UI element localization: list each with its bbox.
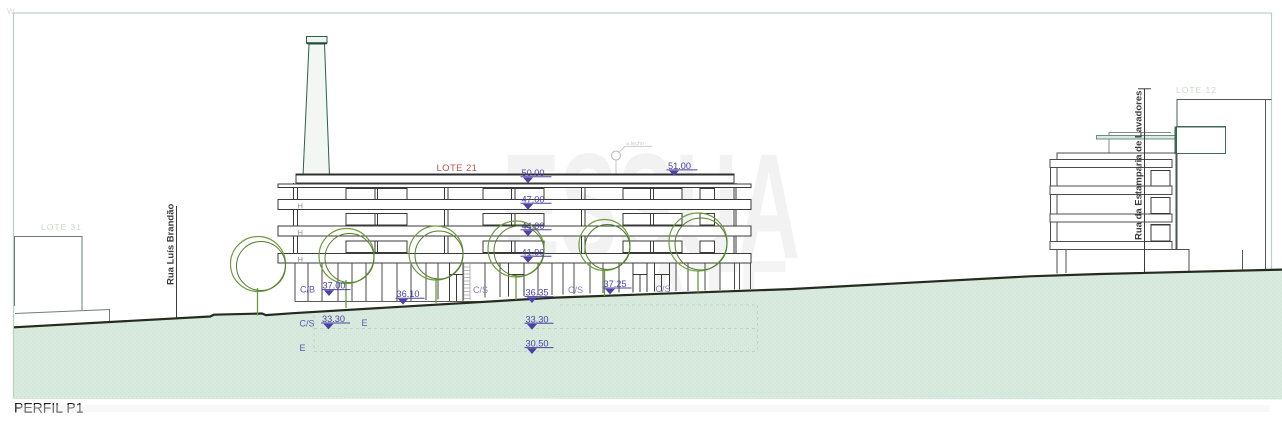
svg-text:H: H: [298, 201, 303, 210]
svg-text:H: H: [298, 255, 303, 264]
svg-text:LOTE 21: LOTE 21: [437, 163, 478, 174]
svg-text:Rua da Estamparia de Lavadores: Rua da Estamparia de Lavadores: [1134, 91, 1145, 240]
svg-text:H: H: [298, 228, 303, 237]
svg-text:LOTE 31: LOTE 31: [41, 222, 82, 232]
svg-text:C/B: C/B: [300, 285, 315, 295]
svg-text:C/S: C/S: [656, 284, 671, 294]
svg-text:W: W: [7, 7, 15, 16]
svg-text:LOTE 12: LOTE 12: [1176, 85, 1217, 95]
svg-text:E: E: [300, 343, 306, 353]
svg-text:C/S: C/S: [300, 319, 315, 329]
svg-text:E: E: [362, 318, 368, 328]
svg-text:C/S: C/S: [473, 285, 488, 295]
svg-text:C/S: C/S: [568, 285, 583, 295]
svg-text:Rua Luís Brandão: Rua Luís Brandão: [166, 204, 177, 285]
svg-text:a.techn: a.techn: [626, 141, 644, 147]
